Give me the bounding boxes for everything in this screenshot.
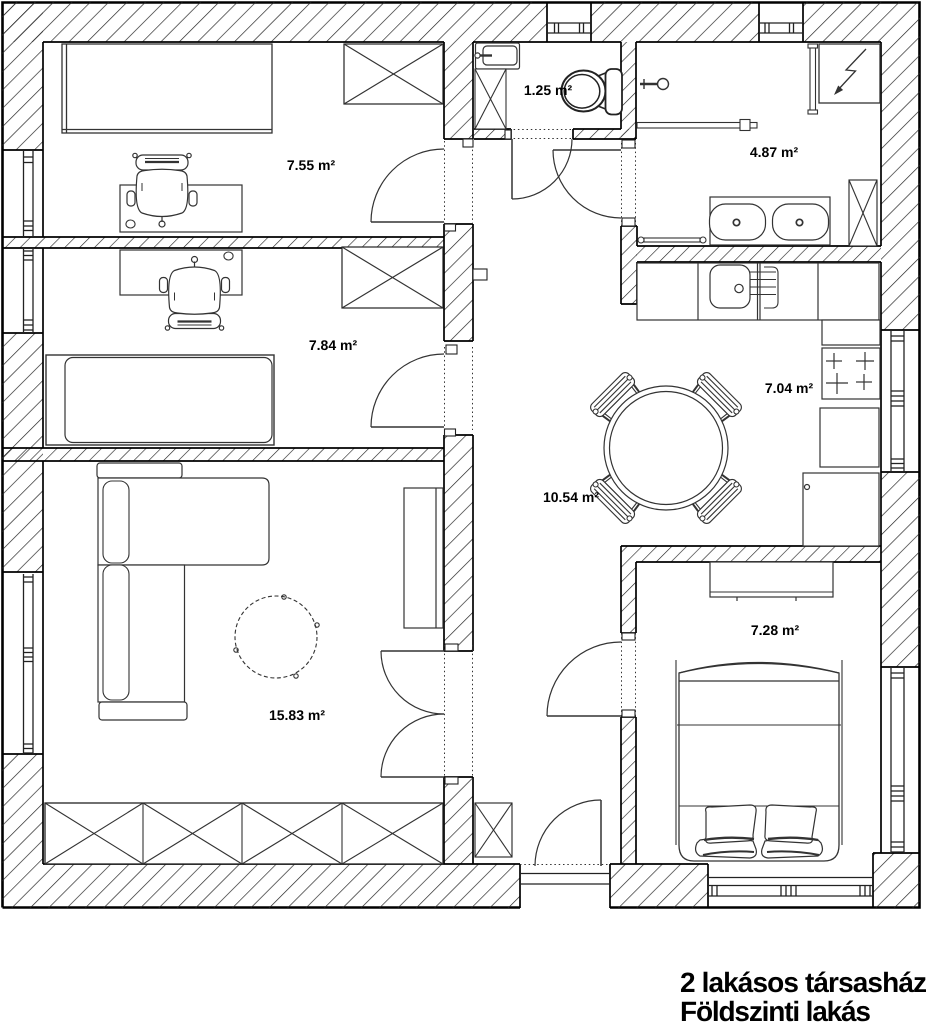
svg-text:7.55 m²: 7.55 m² bbox=[287, 157, 336, 173]
svg-text:1.25 m²: 1.25 m² bbox=[524, 82, 573, 98]
svg-text:7.04 m²: 7.04 m² bbox=[765, 380, 814, 396]
svg-text:7.28 m²: 7.28 m² bbox=[751, 622, 800, 638]
svg-text:Földszinti lakás: Földszinti lakás bbox=[680, 996, 871, 1024]
svg-text:7.84 m²: 7.84 m² bbox=[309, 337, 358, 353]
svg-text:4.87 m²: 4.87 m² bbox=[750, 144, 799, 160]
svg-text:15.83 m²: 15.83 m² bbox=[269, 707, 325, 723]
svg-text:10.54 m²: 10.54 m² bbox=[543, 489, 599, 505]
svg-text:2 lakásos társasház: 2 lakásos társasház bbox=[680, 967, 927, 998]
